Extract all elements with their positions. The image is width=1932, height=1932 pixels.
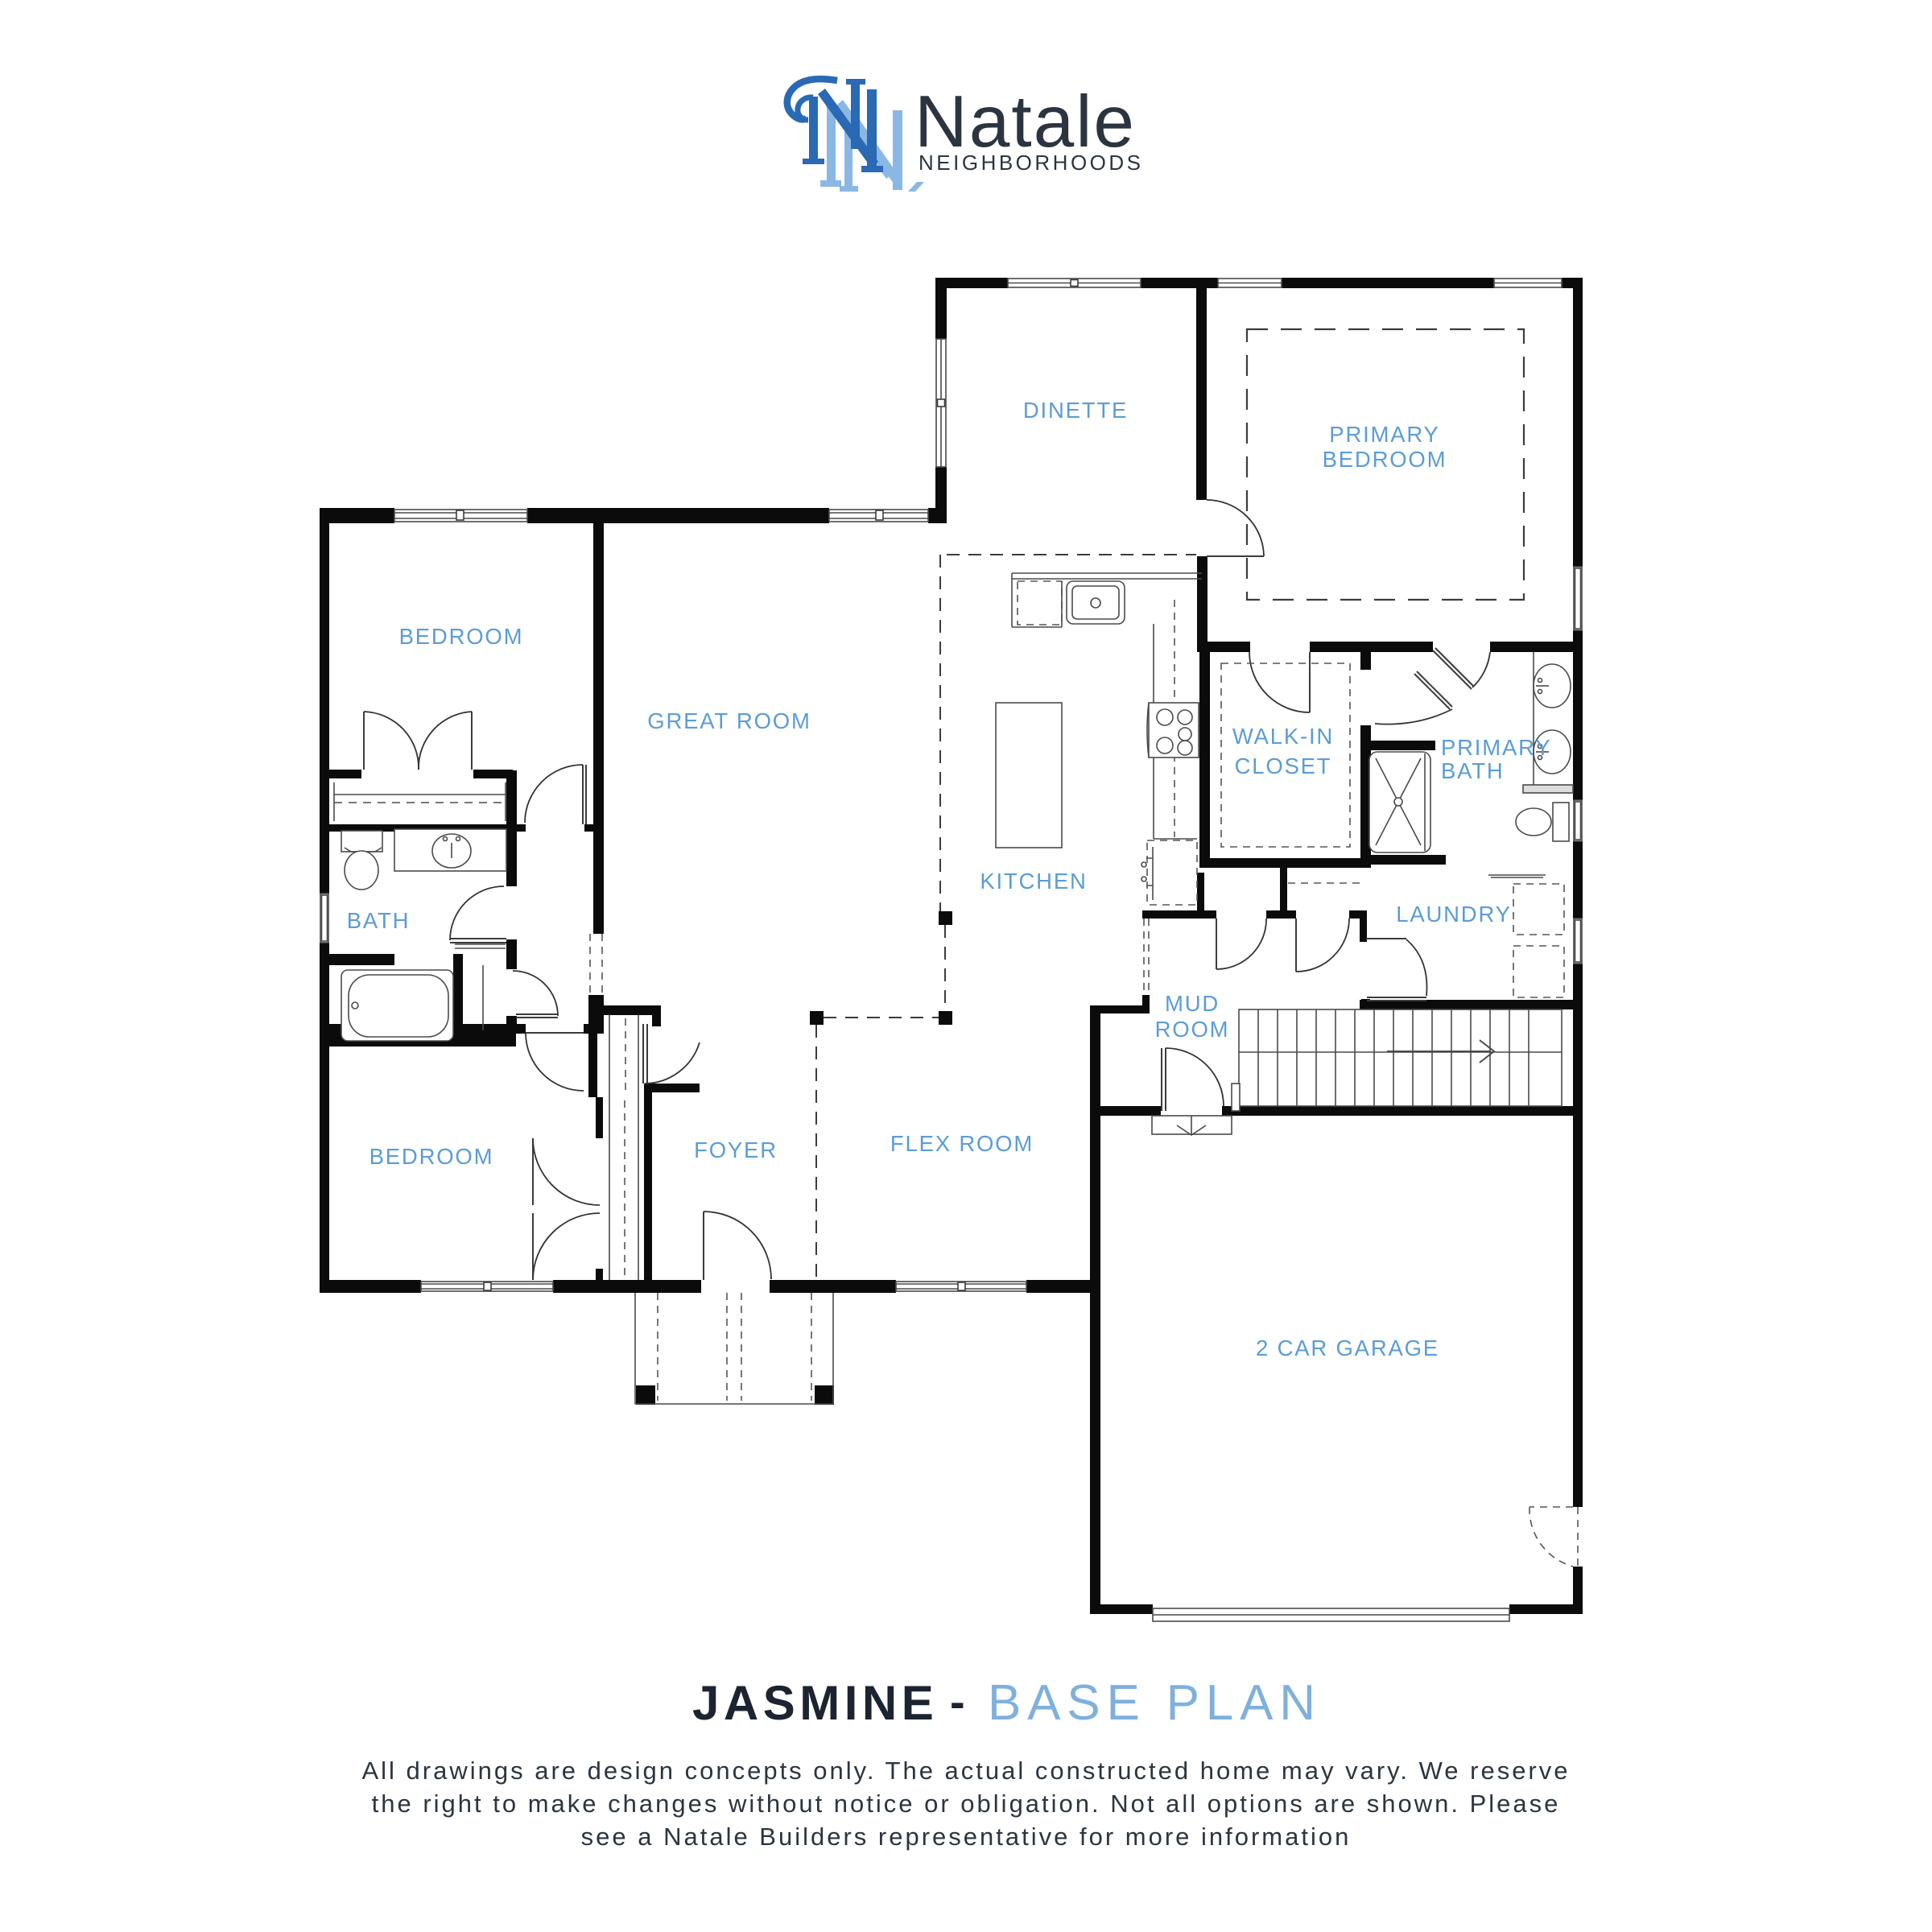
svg-text:MUD: MUD: [1165, 991, 1220, 1016]
svg-text:All drawings are design concep: All drawings are design concepts only. T…: [361, 1757, 1570, 1785]
svg-text:the right to make changes with: the right to make changes without notice…: [372, 1790, 1561, 1818]
svg-text:KITCHEN: KITCHEN: [980, 869, 1087, 894]
svg-text:BATH: BATH: [347, 908, 411, 933]
svg-text:BEDROOM: BEDROOM: [369, 1144, 494, 1169]
svg-text:JASMINE: JASMINE: [692, 1676, 938, 1730]
svg-text:2 CAR GARAGE: 2 CAR GARAGE: [1256, 1335, 1439, 1360]
svg-text:BASE PLAN: BASE PLAN: [988, 1675, 1322, 1731]
svg-text:NEIGHBORHOODS: NEIGHBORHOODS: [919, 151, 1144, 175]
svg-text:-: -: [950, 1676, 965, 1727]
svg-text:GREAT ROOM: GREAT ROOM: [647, 708, 811, 733]
svg-text:PRIMARY: PRIMARY: [1329, 422, 1439, 447]
svg-text:BEDROOM: BEDROOM: [399, 624, 524, 649]
svg-text:WALK-IN: WALK-IN: [1232, 724, 1334, 749]
svg-text:BEDROOM: BEDROOM: [1323, 447, 1447, 472]
svg-text:LAUNDRY: LAUNDRY: [1396, 902, 1512, 927]
svg-text:ROOM: ROOM: [1155, 1017, 1230, 1042]
svg-text:FLEX ROOM: FLEX ROOM: [890, 1131, 1034, 1156]
svg-text:FOYER: FOYER: [694, 1137, 778, 1162]
svg-text:PRIMARY: PRIMARY: [1441, 735, 1551, 760]
svg-text:CLOSET: CLOSET: [1235, 753, 1332, 778]
svg-text:DINETTE: DINETTE: [1023, 398, 1128, 423]
svg-text:BATH: BATH: [1441, 758, 1505, 783]
svg-text:see a Natale Builders represen: see a Natale Builders representative for…: [581, 1823, 1352, 1851]
